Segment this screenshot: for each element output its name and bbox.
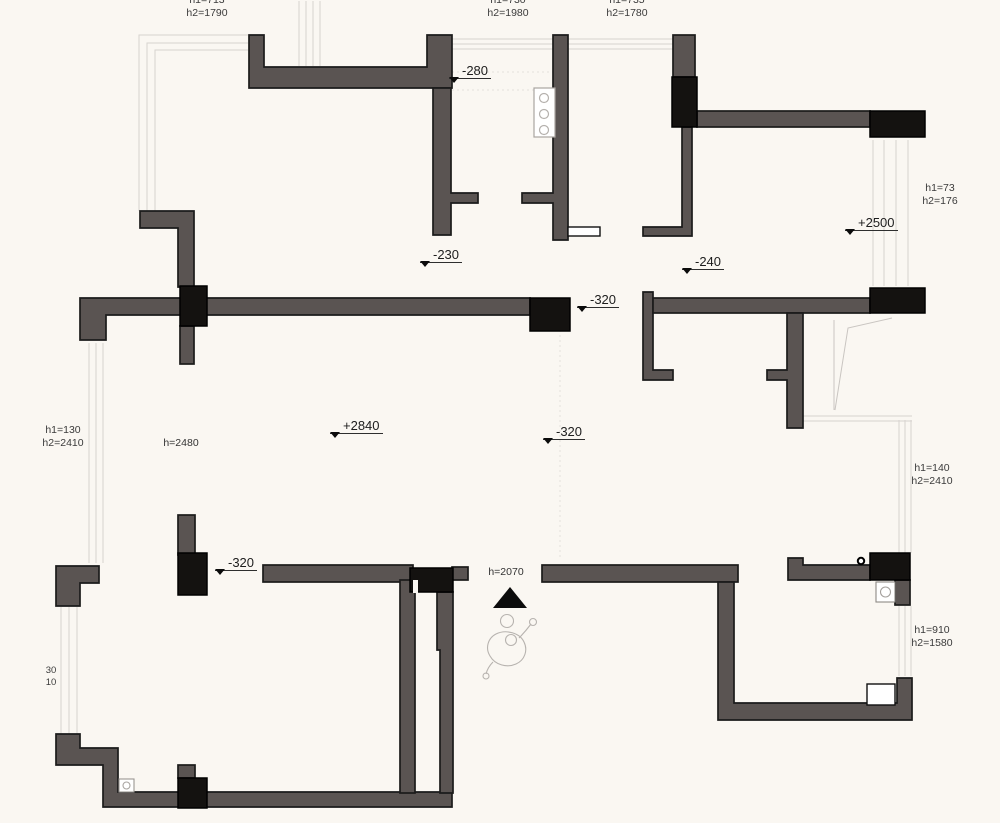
drain-icon (119, 779, 134, 792)
person-figure-icon (483, 615, 537, 680)
elevation-marker-kitchen: -280 (449, 63, 491, 79)
door-opening (568, 227, 600, 236)
walls-layer (56, 35, 912, 807)
appliance-box (867, 684, 895, 705)
elevation-triangle-icon (215, 569, 225, 575)
height-label-right-upper: h1=73 h2=176 (922, 182, 957, 207)
sink-icon (876, 582, 895, 602)
height-label-top-right: h1=735 h2=1780 (606, 0, 647, 19)
column-slot (413, 580, 418, 593)
height-label-right-mid: h1=140 h2=2410 (911, 462, 952, 487)
elevation-triangle-icon (543, 438, 553, 444)
height-label-top-mid: h1=730 h2=1980 (487, 0, 528, 19)
room-height-label-living: h=2480 (163, 437, 198, 449)
elevation-marker-living-left: -320 (215, 555, 257, 571)
elevation-triangle-icon (330, 432, 340, 438)
room-height-label-entry: h=2070 (488, 566, 523, 578)
elevation-marker-living-right: -320 (543, 424, 585, 440)
height-label-top-left: h1=713 h2=1790 (186, 0, 227, 19)
door-swing-lines (834, 318, 892, 410)
elevation-triangle-icon (420, 261, 430, 267)
entrance-arrow-icon (493, 587, 527, 608)
elevation-triangle-icon (682, 268, 692, 274)
elevation-marker-hall-top: -230 (420, 247, 462, 263)
elevation-marker-balcony-right: +2500 (845, 215, 898, 231)
knob-icon (858, 558, 864, 564)
height-label-right-lower: h1=910 h2=1580 (911, 624, 952, 649)
elevation-triangle-icon (577, 306, 587, 312)
elevation-triangle-icon (449, 77, 459, 83)
floor-plan-drawing (0, 0, 1000, 823)
elevation-marker-living: +2840 (330, 418, 383, 434)
height-label-left-mid: h1=130 h2=2410 (42, 424, 83, 449)
elevation-triangle-icon (845, 229, 855, 235)
stove-icon (534, 88, 555, 137)
elevation-marker-hall-mid: -320 (577, 292, 619, 308)
height-label-left-bottom: 30 10 (46, 665, 57, 688)
floor-plan-page: h1=713 h2=1790 h1=730 h2=1980 h1=735 h2=… (0, 0, 1000, 823)
elevation-marker-bed-right: -240 (682, 254, 724, 270)
